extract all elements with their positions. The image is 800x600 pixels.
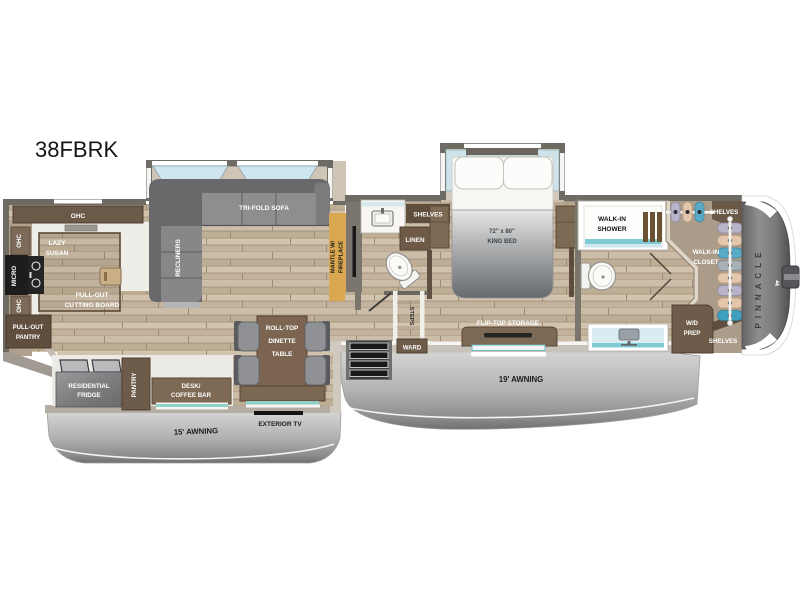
svg-text:WARD: WARD bbox=[403, 346, 422, 352]
svg-text:LAZY: LAZY bbox=[49, 240, 67, 247]
svg-text:TABLE: TABLE bbox=[272, 351, 294, 358]
svg-text:OHC: OHC bbox=[16, 234, 23, 248]
svg-text:PULL-OUT: PULL-OUT bbox=[13, 324, 44, 331]
svg-text:OHC: OHC bbox=[16, 299, 23, 313]
svg-text:TRI-FOLD SOFA: TRI-FOLD SOFA bbox=[239, 205, 289, 212]
svg-text:W/D: W/D bbox=[686, 320, 699, 327]
svg-text:PINNACLE: PINNACLE bbox=[754, 248, 763, 329]
svg-text:15' AWNING: 15' AWNING bbox=[174, 426, 219, 437]
svg-text:PANTRY: PANTRY bbox=[16, 334, 40, 341]
svg-text:PULL-OUT: PULL-OUT bbox=[76, 292, 109, 299]
svg-text:KING BED: KING BED bbox=[487, 239, 517, 245]
svg-text:FIREPLACE: FIREPLACE bbox=[339, 241, 345, 273]
svg-text:PREP: PREP bbox=[684, 330, 701, 337]
svg-text:CUTTING BOARD: CUTTING BOARD bbox=[65, 302, 120, 309]
svg-text:MANTLE W/: MANTLE W/ bbox=[331, 240, 337, 273]
svg-text:38FBRK: 38FBRK bbox=[35, 137, 118, 162]
svg-text:CLOSET: CLOSET bbox=[693, 259, 718, 266]
svg-text:LINEN: LINEN bbox=[405, 237, 425, 244]
svg-text:FRIDGE: FRIDGE bbox=[77, 392, 100, 399]
svg-text:COFFEE BAR: COFFEE BAR bbox=[171, 392, 212, 399]
svg-text:SUSAN: SUSAN bbox=[46, 250, 69, 257]
svg-text:19' AWNING: 19' AWNING bbox=[499, 375, 543, 384]
svg-text:PANTRY: PANTRY bbox=[131, 372, 138, 398]
svg-text:WALK-IN: WALK-IN bbox=[598, 216, 626, 223]
svg-text:SHOWER: SHOWER bbox=[597, 226, 627, 233]
svg-text:MICRO: MICRO bbox=[11, 266, 18, 287]
svg-text:DINETTE: DINETTE bbox=[268, 338, 296, 345]
svg-text:DESK/: DESK/ bbox=[182, 383, 201, 390]
svg-text:SHELVES: SHELVES bbox=[710, 209, 738, 216]
svg-text:STEPS: STEPS bbox=[408, 307, 414, 326]
svg-text:RECLINERS: RECLINERS bbox=[175, 239, 182, 277]
svg-text:72" x 80": 72" x 80" bbox=[489, 229, 515, 235]
svg-text:RESIDENTIAL: RESIDENTIAL bbox=[68, 383, 109, 390]
svg-text:SHELVES: SHELVES bbox=[413, 212, 443, 219]
svg-text:OHC: OHC bbox=[71, 213, 86, 220]
svg-text:EXTERIOR TV: EXTERIOR TV bbox=[258, 421, 302, 428]
svg-text:FLIP-TOP STORAGE: FLIP-TOP STORAGE bbox=[477, 320, 540, 327]
svg-text:SHELVES: SHELVES bbox=[709, 338, 737, 345]
svg-text:WALK-IN: WALK-IN bbox=[693, 249, 720, 256]
svg-text:ROLL-TOP: ROLL-TOP bbox=[266, 325, 299, 332]
